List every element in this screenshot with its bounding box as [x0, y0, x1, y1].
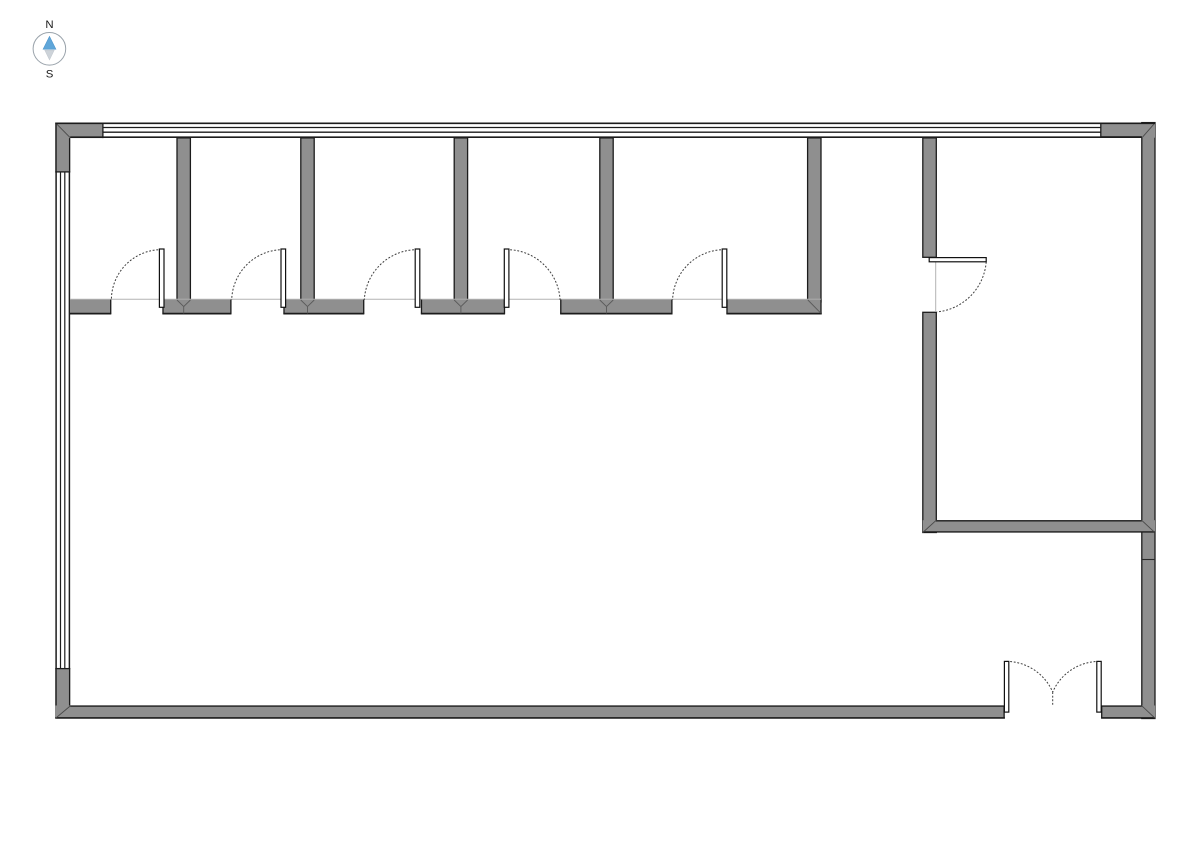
svg-text:S: S: [46, 69, 54, 81]
svg-text:N: N: [45, 19, 53, 31]
